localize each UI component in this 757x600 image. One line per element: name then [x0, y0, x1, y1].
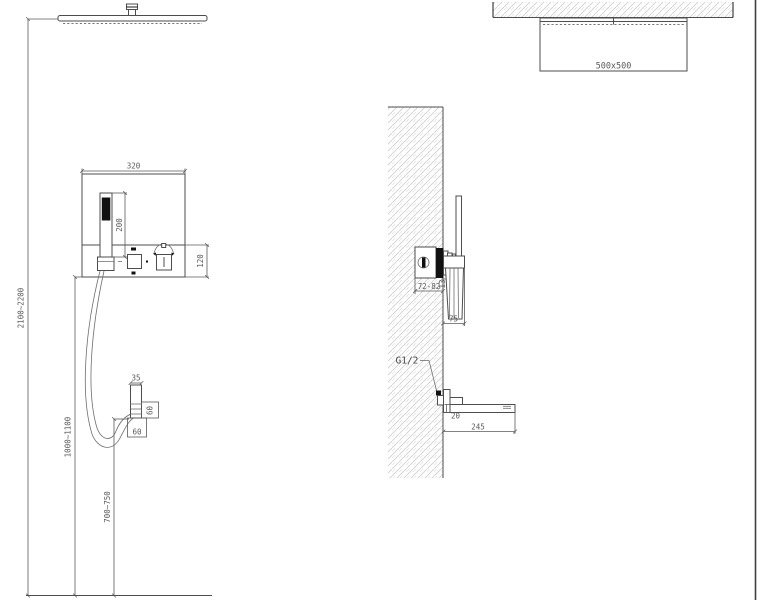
dim-mixer-height: 1000~1100 — [64, 277, 83, 596]
temperature-knob — [153, 244, 175, 271]
wall-section-side-view: 72-82 13 75 G1/2 — [388, 107, 515, 478]
inlet-connection-point — [436, 391, 441, 396]
dim-panel-width-label: 320 — [127, 162, 141, 171]
valve-seal — [436, 248, 444, 278]
dim-panel-width: 320 — [82, 162, 185, 175]
diverter-mark-top — [131, 248, 136, 251]
dim-holder-projection-label: 75 — [449, 315, 458, 324]
rain-shower-head-profile — [58, 4, 207, 24]
dim-rain-head-height-label: 2100~2200 — [17, 287, 26, 328]
dim-outlet-height-label: 700~750 — [103, 491, 112, 523]
ceiling-hatch — [493, 2, 733, 18]
hand-shower-handle-side — [456, 196, 462, 257]
ceiling-head-view: 500x500 — [493, 2, 733, 72]
dim-holder-width-label: 35 — [131, 374, 140, 383]
rain-head-stem — [129, 10, 136, 16]
hand-shower-front — [98, 193, 115, 271]
front-elevation-view: 2100~2200 320 120 — [17, 4, 213, 596]
hand-shower-side — [444, 196, 465, 319]
holder-body — [131, 385, 142, 418]
dim-head-size-label: 500x500 — [596, 62, 632, 72]
dim-holder-height-label: 60 — [146, 406, 155, 416]
dim-control-section: 120 — [185, 245, 209, 277]
hand-shower-body-side — [446, 268, 464, 319]
knob-stem — [162, 244, 166, 248]
dim-spout-height-label: 20 — [451, 412, 461, 421]
dim-outlet-height: 700~750 — [103, 419, 129, 596]
inlet-thread-label: G1/2 — [396, 356, 419, 367]
dim-rain-head-height: 2100~2200 — [17, 19, 59, 596]
bath-spout-side — [438, 390, 516, 413]
dim-spout-length-label: 245 — [471, 423, 485, 432]
hand-shower-head — [102, 198, 111, 221]
dim-mixer-height-label: 1000~1100 — [64, 416, 73, 457]
spout-base — [450, 398, 463, 405]
dim-valve-recess-label: 72-82 — [418, 282, 441, 291]
dim-holder-base-label: 60 — [132, 428, 142, 437]
spout-inwall-fitting — [438, 396, 444, 406]
dim-trim-thickness-label: 13 — [438, 279, 447, 288]
hand-shower-bracket — [444, 256, 465, 268]
dim-control-section-label: 120 — [196, 254, 205, 268]
hose-outlet-holder: 35 60 60 — [128, 374, 159, 438]
rain-head-plate — [58, 16, 207, 22]
wall-hatch — [388, 107, 443, 478]
diverter-mark-bottom — [132, 272, 136, 275]
dim-hand-shower-length-label: 200 — [115, 218, 124, 232]
technical-drawing-canvas: 2100~2200 320 120 — [0, 0, 757, 600]
hand-shower-cradle — [98, 257, 115, 271]
